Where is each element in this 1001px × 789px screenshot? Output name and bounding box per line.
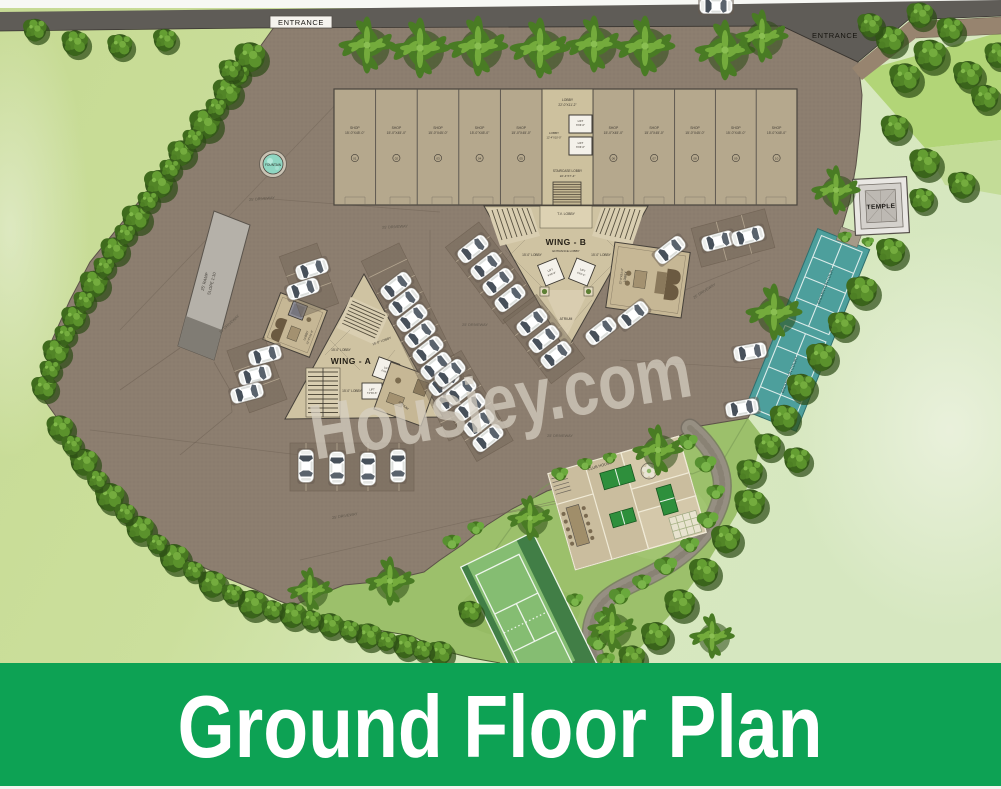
- svg-text:ENTRANCE: ENTRANCE: [812, 31, 858, 40]
- svg-text:22'-0"X11'-2": 22'-0"X11'-2": [558, 103, 576, 107]
- svg-text:LOBBY: LOBBY: [562, 98, 574, 102]
- svg-text:08: 08: [693, 157, 697, 161]
- svg-text:02: 02: [395, 157, 399, 161]
- svg-text:12'-4"X10'-0": 12'-4"X10'-0": [547, 136, 562, 140]
- svg-text:15'-0" LOBBY: 15'-0" LOBBY: [522, 253, 543, 257]
- svg-text:03: 03: [436, 157, 440, 161]
- svg-text:15'-0"X45'-0": 15'-0"X45'-0": [767, 131, 787, 135]
- svg-text:10: 10: [775, 157, 779, 161]
- svg-text:Ground Floor Plan: Ground Floor Plan: [178, 677, 823, 776]
- svg-text:07: 07: [653, 157, 657, 161]
- svg-text:STAIRCASE LOBBY: STAIRCASE LOBBY: [553, 169, 583, 173]
- svg-text:T.V. LOBBY: T.V. LOBBY: [557, 212, 576, 216]
- svg-text:SHOP: SHOP: [475, 126, 485, 130]
- svg-text:22'-4"X7'-4": 22'-4"X7'-4": [560, 174, 576, 178]
- svg-text:SHOP: SHOP: [609, 126, 619, 130]
- svg-text:15'-0"X45'-0": 15'-0"X45'-0": [428, 131, 448, 135]
- svg-text:15'-0"X45'-0": 15'-0"X45'-0": [685, 131, 705, 135]
- svg-text:05: 05: [520, 157, 524, 161]
- svg-text:01: 01: [353, 157, 357, 161]
- svg-text:FOUNTAIN: FOUNTAIN: [265, 163, 282, 167]
- svg-text:WING - A: WING - A: [331, 356, 372, 366]
- svg-text:SHOP: SHOP: [690, 126, 700, 130]
- svg-text:SHOP: SHOP: [516, 126, 526, 130]
- svg-text:WING - B: WING - B: [546, 237, 587, 247]
- svg-text:SHOP: SHOP: [350, 126, 360, 130]
- svg-text:15'-0"X45'-0": 15'-0"X45'-0": [511, 131, 531, 135]
- svg-text:04: 04: [478, 157, 482, 161]
- svg-text:15'-0"X45'-0": 15'-0"X45'-0": [345, 131, 365, 135]
- svg-text:LIFT: LIFT: [578, 141, 584, 145]
- svg-text:SHOP: SHOP: [731, 126, 741, 130]
- svg-text:LOBBY: LOBBY: [549, 131, 559, 135]
- svg-text:15'-0" LOBBY: 15'-0" LOBBY: [331, 348, 352, 352]
- svg-text:LIFT: LIFT: [578, 119, 584, 123]
- svg-text:06: 06: [612, 157, 616, 161]
- svg-text:15'-0"X45'-0": 15'-0"X45'-0": [644, 131, 664, 135]
- svg-text:SHOP: SHOP: [772, 126, 782, 130]
- svg-text:SHOP: SHOP: [433, 126, 443, 130]
- svg-text:15'-0"X45'-0": 15'-0"X45'-0": [387, 131, 407, 135]
- svg-text:25' DRIVEWAY: 25' DRIVEWAY: [462, 323, 488, 327]
- svg-text:6'X6'-6": 6'X6'-6": [576, 123, 585, 127]
- svg-text:15'-0"X45'-0": 15'-0"X45'-0": [604, 131, 624, 135]
- svg-text:ENTRANCE: ENTRANCE: [278, 18, 324, 27]
- svg-text:ATRIUM: ATRIUM: [560, 317, 573, 321]
- svg-text:09: 09: [734, 157, 738, 161]
- svg-text:ENTRANCE LOBBY: ENTRANCE LOBBY: [552, 249, 579, 253]
- svg-text:SHOP: SHOP: [649, 126, 659, 130]
- svg-text:6'X6'-6": 6'X6'-6": [576, 145, 585, 149]
- svg-text:15'-0"X45'-0": 15'-0"X45'-0": [470, 131, 490, 135]
- svg-text:15'-0" LOBBY: 15'-0" LOBBY: [591, 253, 612, 257]
- svg-text:15'-0"X45'-0": 15'-0"X45'-0": [726, 131, 746, 135]
- svg-text:SHOP: SHOP: [392, 126, 402, 130]
